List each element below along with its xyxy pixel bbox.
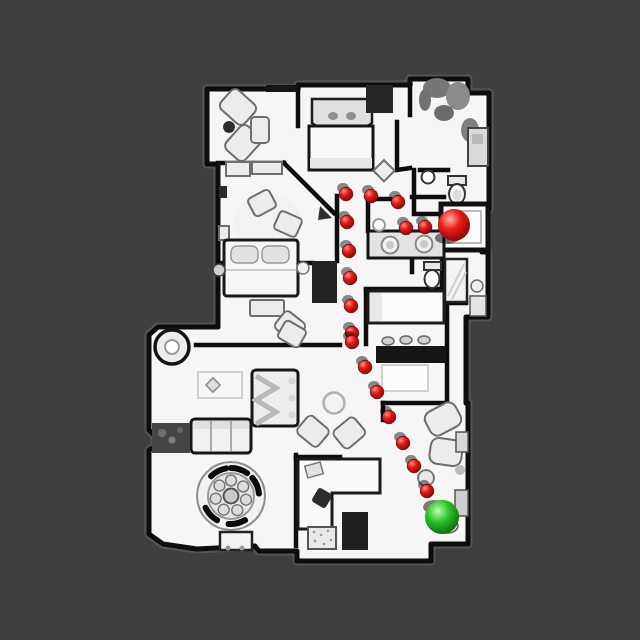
pillow-icon [346, 112, 356, 120]
console-icon [252, 162, 282, 174]
console-icon [226, 162, 250, 176]
table-icon [376, 346, 446, 363]
table-icon [250, 300, 284, 316]
shelf-icon [456, 432, 468, 452]
clutter-blob [177, 427, 183, 433]
scan-blob [434, 105, 454, 121]
chair-icon [382, 337, 394, 345]
console-knob [226, 546, 231, 551]
dining-table-icon [197, 462, 265, 530]
chair-icon [400, 336, 412, 344]
burner-center [386, 241, 394, 249]
pillow-icon [231, 246, 258, 263]
cabinet-icon [470, 296, 486, 316]
side-table-icon [223, 121, 235, 133]
cabinet-icon [219, 226, 229, 240]
sofa-button [289, 395, 296, 402]
closet-icon [366, 85, 393, 113]
sink-icon [472, 134, 483, 144]
sofa-button [289, 412, 296, 419]
ottoman-icon [324, 393, 345, 414]
toilet-bowl [453, 189, 462, 201]
coffee-table-icon [251, 117, 269, 143]
nightstand-icon [297, 262, 309, 274]
fireplace-center [165, 340, 179, 354]
clutter-blob [158, 429, 166, 437]
pillow-icon [328, 112, 338, 120]
clutter-blob [455, 465, 465, 475]
sofa-button [289, 378, 296, 385]
wall-notch [266, 85, 298, 92]
pillow-icon [370, 293, 382, 321]
couch-back [193, 421, 249, 429]
burner-center [420, 240, 428, 248]
scan-blob [419, 89, 431, 111]
speckled-rug-icon [308, 527, 336, 549]
closet-icon [312, 261, 337, 303]
scan-viewport[interactable] [0, 0, 640, 640]
sink-icon [422, 171, 435, 184]
console-knob [240, 546, 245, 551]
shelf-icon [219, 186, 227, 198]
cabinet-icon [468, 128, 488, 166]
stove-icon [342, 512, 368, 550]
toilet-icon [425, 270, 440, 288]
sink-icon [471, 280, 483, 292]
chair-icon [418, 336, 430, 344]
bed-foot [310, 158, 372, 168]
scan-blob [446, 82, 470, 110]
console-icon [220, 532, 252, 550]
nightstand-icon [213, 264, 225, 276]
clutter-blob [169, 437, 176, 444]
floorplan-canvas [0, 0, 640, 640]
pillow-icon [262, 246, 289, 263]
sink-icon [373, 219, 385, 231]
rug-icon [382, 365, 428, 391]
toilet-tank [424, 262, 441, 270]
